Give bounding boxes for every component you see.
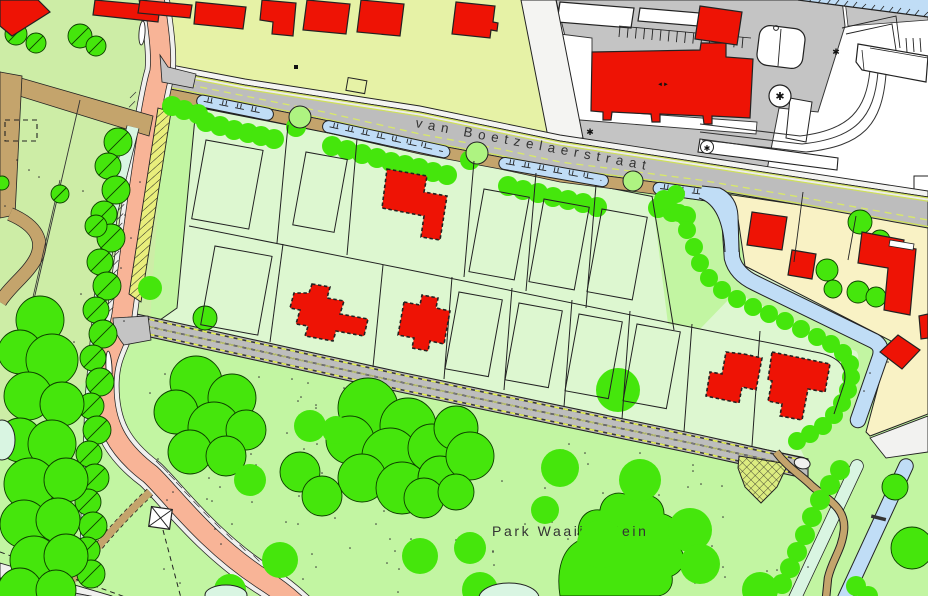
svg-text:◄►: ◄► (657, 82, 669, 88)
svg-text:✱: ✱ (775, 91, 784, 103)
svg-text:Park Waaijenstein: Park Waaijenstein (492, 523, 649, 539)
svg-text:✱: ✱ (704, 144, 711, 153)
svg-text:✱: ✱ (586, 127, 594, 137)
svg-text:✱: ✱ (832, 47, 840, 57)
